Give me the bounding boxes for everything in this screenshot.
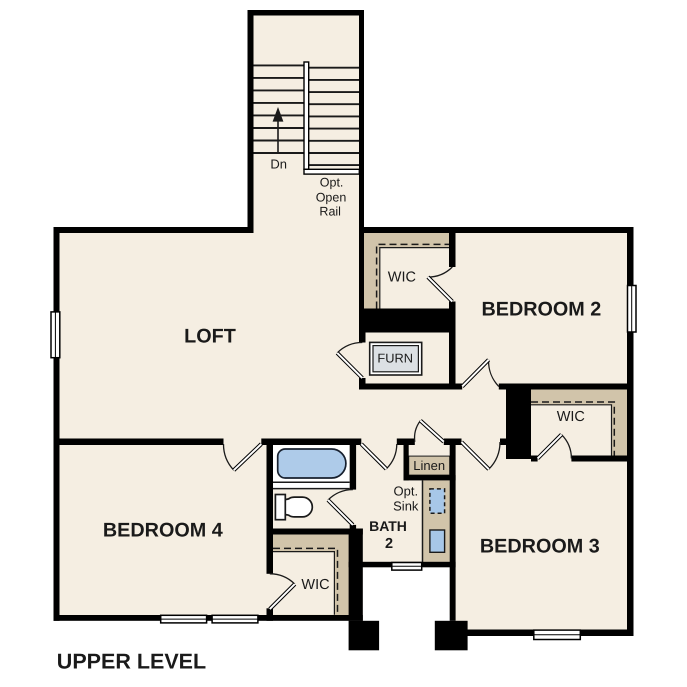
svg-text:WIC: WIC (557, 409, 585, 425)
svg-text:UPPER LEVEL: UPPER LEVEL (57, 650, 206, 674)
svg-text:WIC: WIC (301, 577, 329, 593)
svg-text:Linen: Linen (413, 458, 445, 473)
svg-text:BEDROOM 4: BEDROOM 4 (103, 519, 223, 541)
svg-text:WIC: WIC (388, 269, 416, 285)
svg-text:BEDROOM 2: BEDROOM 2 (481, 298, 601, 320)
svg-text:BATH: BATH (369, 518, 407, 534)
svg-text:FURN: FURN (377, 350, 413, 365)
svg-text:BEDROOM 3: BEDROOM 3 (480, 535, 600, 557)
svg-text:2: 2 (385, 536, 393, 552)
svg-text:Sink: Sink (393, 499, 419, 514)
svg-text:Open: Open (316, 190, 347, 204)
svg-text:LOFT: LOFT (184, 326, 236, 348)
svg-text:Rail: Rail (319, 204, 341, 218)
svg-text:Opt.: Opt. (394, 483, 419, 498)
svg-text:Dn: Dn (270, 156, 287, 171)
svg-text:Opt.: Opt. (320, 175, 344, 189)
